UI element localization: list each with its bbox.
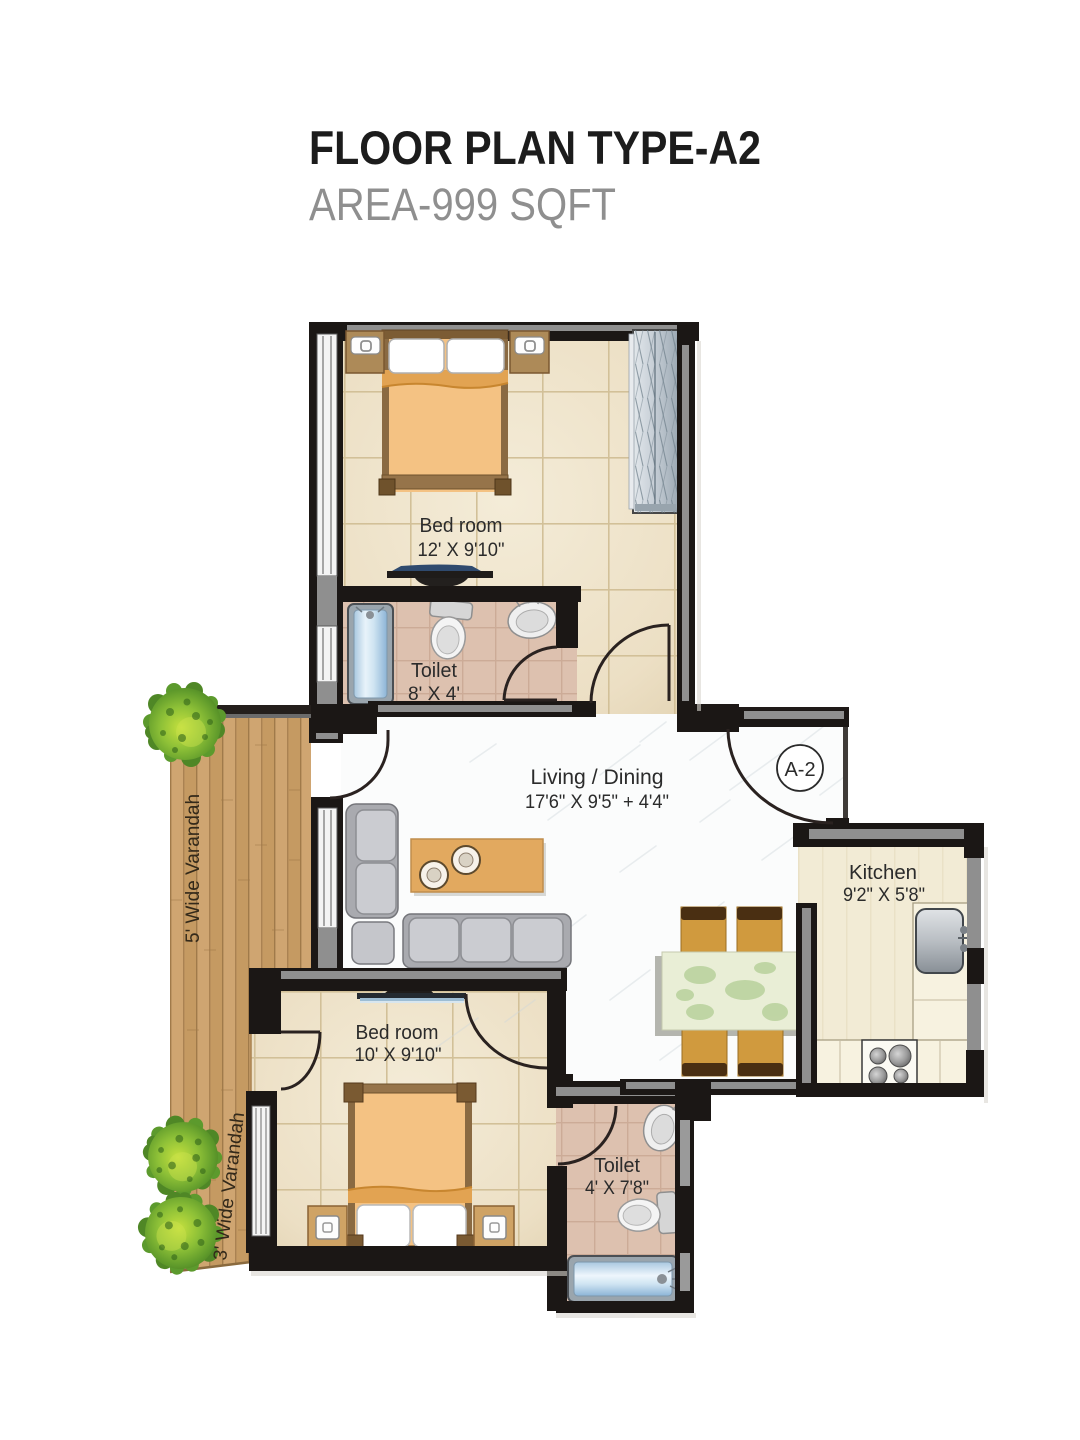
svg-text:Toilet: Toilet: [411, 660, 457, 682]
svg-text:5' Wide Varandah: 5' Wide Varandah: [183, 794, 204, 943]
svg-text:Bed room: Bed room: [356, 1022, 439, 1044]
svg-text:10' X 9'10": 10' X 9'10": [355, 1045, 442, 1066]
svg-text:Bed room: Bed room: [420, 515, 503, 537]
svg-text:4' X 7'8": 4' X 7'8": [585, 1178, 649, 1199]
svg-text:AREA-999 SQFT: AREA-999 SQFT: [309, 179, 616, 230]
svg-text:Living / Dining: Living / Dining: [531, 766, 664, 789]
svg-text:9'2" X 5'8": 9'2" X 5'8": [843, 885, 925, 906]
svg-text:12' X 9'10": 12' X 9'10": [418, 540, 505, 561]
svg-text:FLOOR PLAN TYPE-A2: FLOOR PLAN TYPE-A2: [309, 121, 761, 174]
svg-text:17'6" X 9'5" + 4'4": 17'6" X 9'5" + 4'4": [525, 792, 669, 813]
svg-text:8' X 4': 8' X 4': [408, 684, 460, 705]
svg-text:Kitchen: Kitchen: [849, 862, 917, 884]
svg-text:Toilet: Toilet: [594, 1155, 640, 1177]
svg-text:A-2: A-2: [784, 759, 815, 781]
